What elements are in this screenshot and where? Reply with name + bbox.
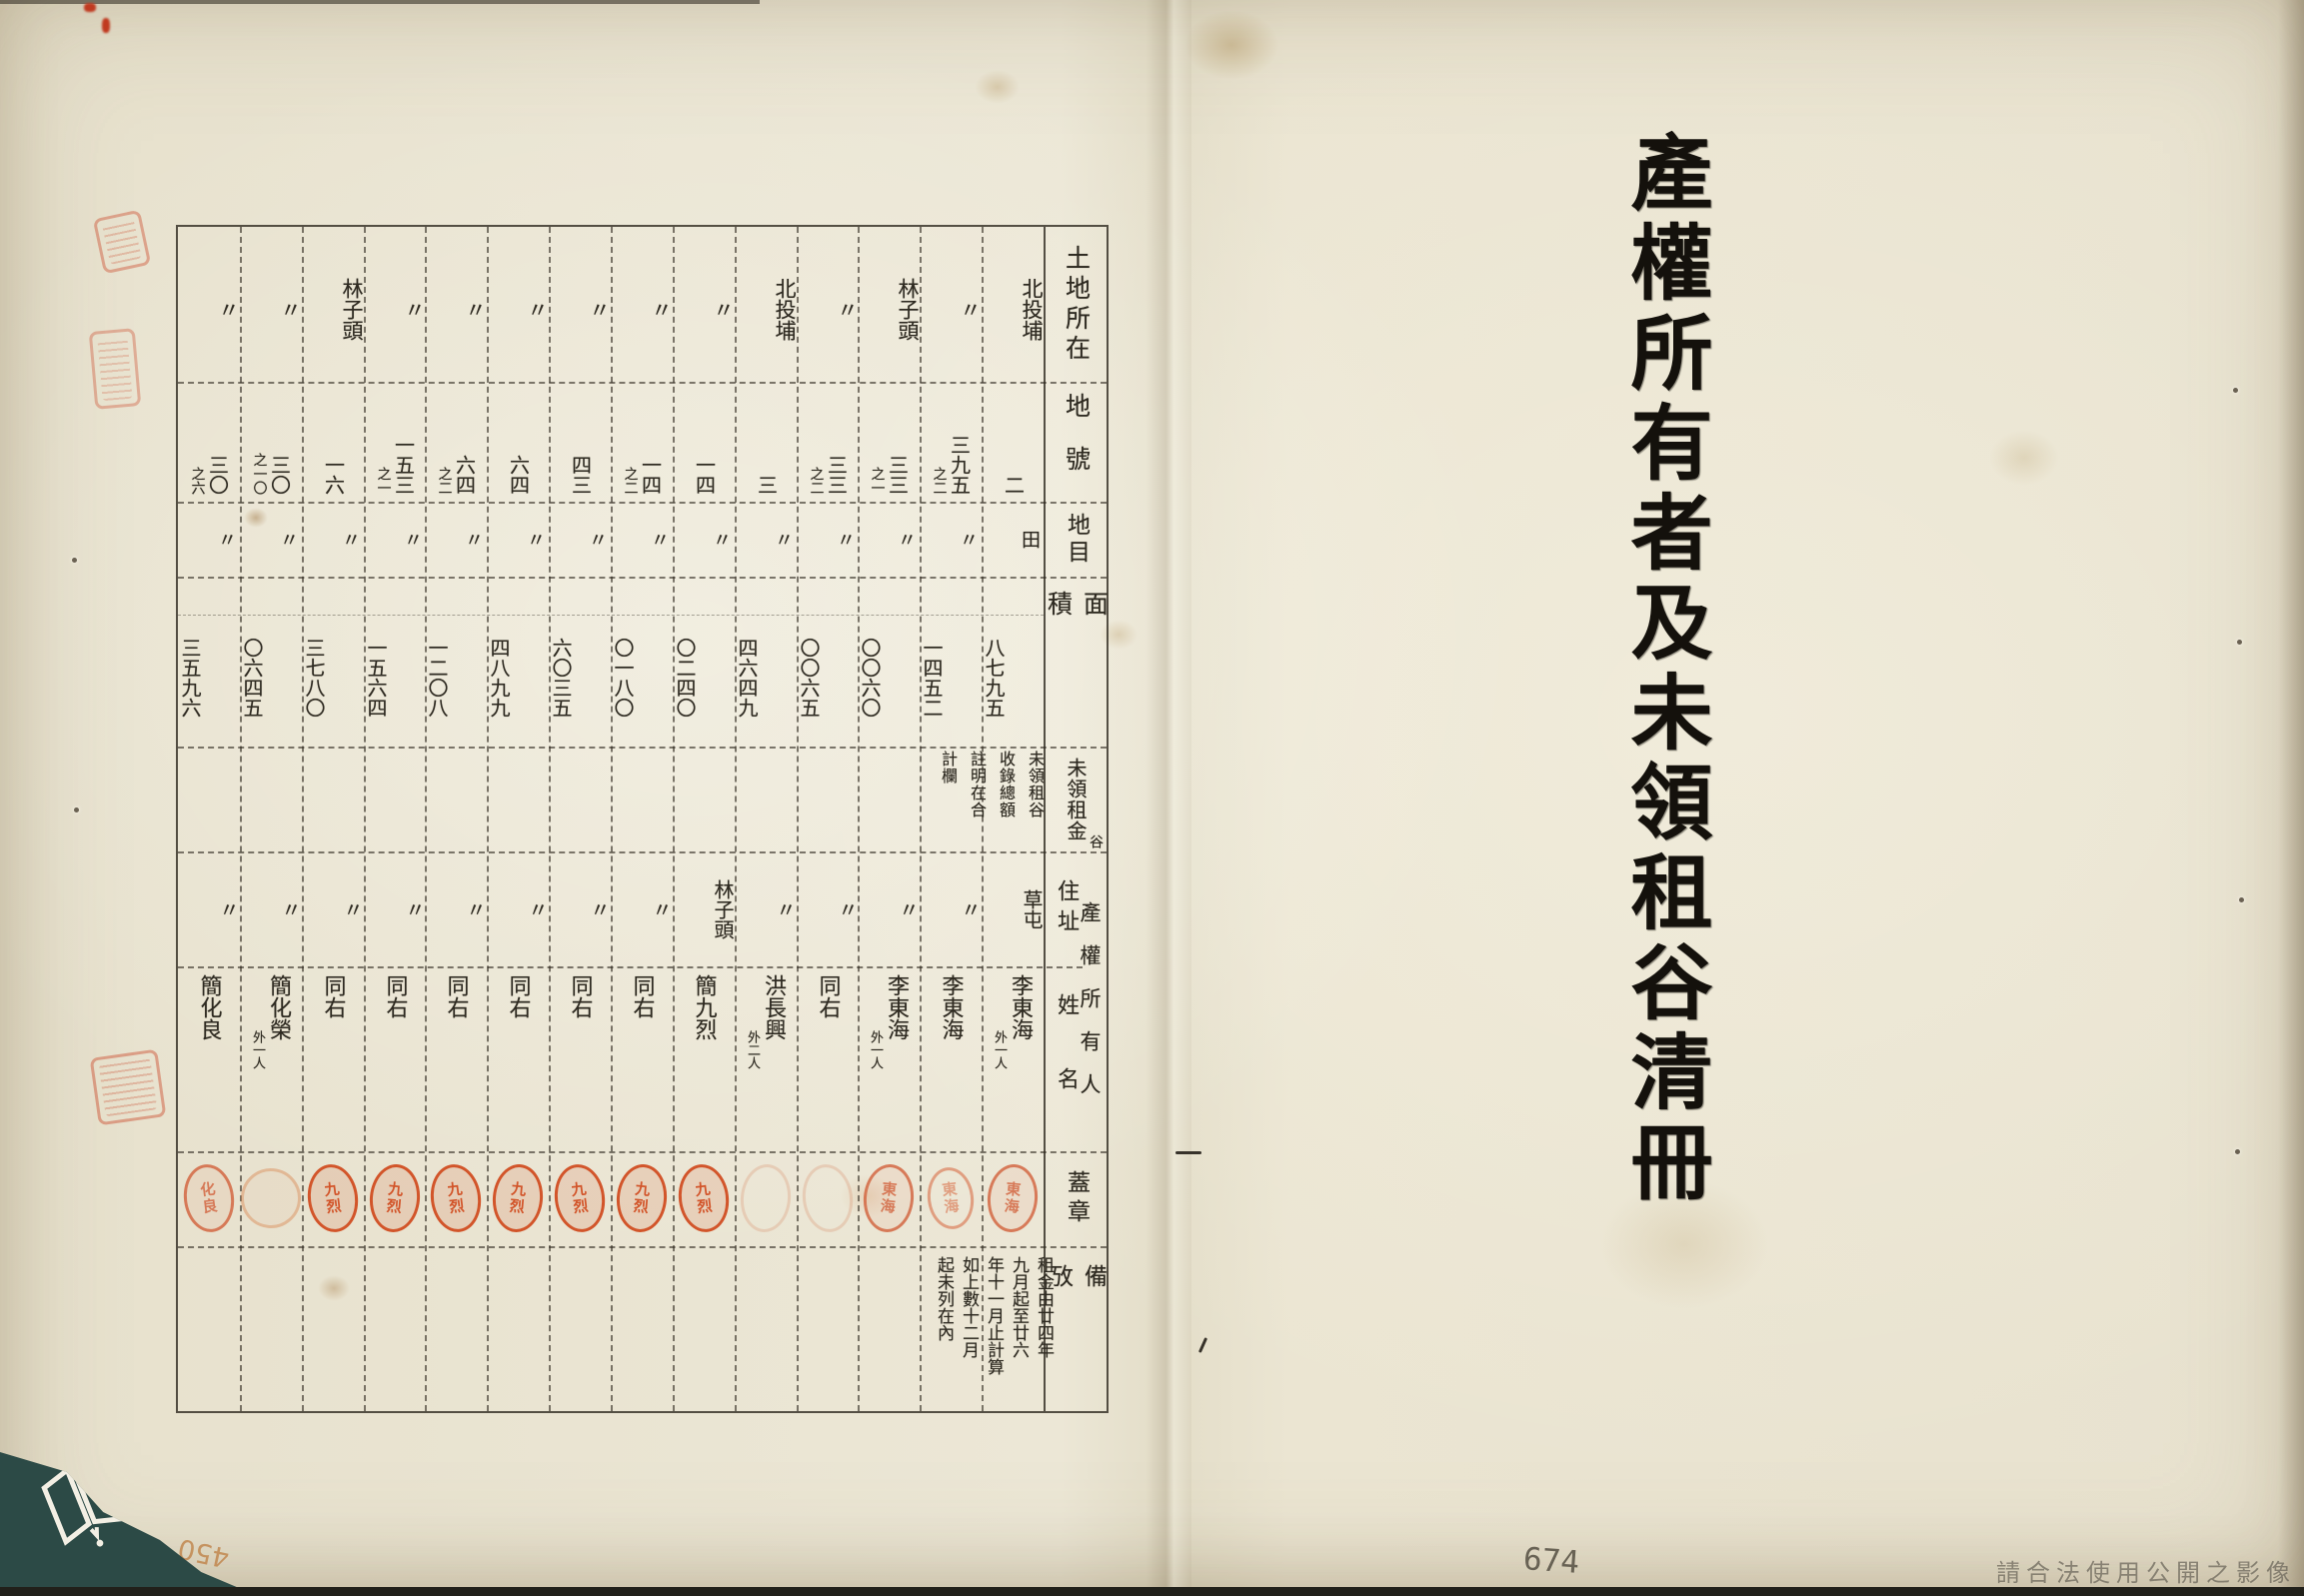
pinhole — [2237, 640, 2242, 645]
cell-seal: 九烈 — [549, 1152, 611, 1244]
header-lot-number: 地號 — [1046, 382, 1107, 502]
seal-stamp-icon: 九烈 — [304, 1161, 362, 1235]
owner-name-annotation: 外一人 — [868, 1030, 883, 1069]
cell-seal: 東海 — [920, 1152, 982, 1244]
table-column-7: 〃 一四 之二 〃 〇一八〇 〃 同右 九烈 — [611, 227, 673, 1411]
lot-main: 一四 — [639, 455, 662, 495]
pinhole — [2239, 897, 2244, 902]
cell-seal: 九烈 — [302, 1152, 364, 1244]
owner-name-annotation: 外二人 — [745, 1030, 760, 1069]
owner-name: 李東海 — [883, 974, 910, 1040]
seal-stamp-icon: 東海 — [924, 1164, 977, 1231]
lot-main: 六四 — [507, 455, 530, 495]
cell-lot-number: 三三 之一 — [858, 407, 920, 499]
table-column-11: 〃 一五三 之一 〃 一五六四 〃 同右 九烈 — [364, 227, 426, 1411]
pinhole — [2235, 1149, 2240, 1154]
cell-address: 〃 — [240, 856, 302, 962]
cover-title: 產權所有者及未領租谷清冊 — [1571, 120, 1751, 1219]
lot-sub: 之二 — [437, 467, 453, 495]
cell-owner-name: 李東海 外一人 — [982, 974, 1044, 1146]
cell-seal: 九烈 — [673, 1152, 735, 1244]
stray-pen-mark — [1175, 1151, 1201, 1154]
cell-area: 一四五二 — [920, 617, 982, 743]
cell-address: 〃 — [858, 856, 920, 962]
seal-stamp-icon: 九烈 — [675, 1161, 733, 1235]
cell-address: 〃 — [797, 856, 859, 962]
lot-sub: 之二 — [623, 467, 639, 495]
cell-seal: 九烈 — [425, 1152, 487, 1244]
table-column-4: 〃 三三 之二 〃 〇〇六五 〃 同右 — [797, 227, 859, 1411]
cell-land-category: 〃 — [425, 509, 487, 569]
cell-address: 〃 — [487, 856, 549, 962]
owner-name: 同右 — [382, 974, 409, 1018]
scan-edge-bottom — [0, 1587, 2304, 1596]
red-speck — [84, 3, 96, 12]
cell-location: 〃 — [611, 239, 673, 379]
cell-seal — [735, 1152, 797, 1244]
scan-edge-top — [0, 0, 760, 4]
cell-lot-number: 三三 之二 — [797, 407, 859, 499]
pinhole — [74, 807, 79, 812]
cell-lot-number: 一四 之二 — [611, 407, 673, 499]
cell-seal — [240, 1152, 302, 1244]
cell-lot-number: 一六 — [302, 407, 364, 499]
cell-area: 〇二四〇 — [673, 617, 735, 743]
owner-name-annotation: 外一人 — [992, 1030, 1007, 1069]
rent-note: 未領租谷收錄總額註明在合計欄 — [934, 751, 1050, 862]
lot-main: 三九五 — [948, 435, 971, 495]
cell-owner-name: 簡九烈 — [673, 974, 735, 1146]
lot-sub: 之二 — [809, 467, 825, 495]
seal-stamp-icon — [799, 1161, 857, 1235]
cell-address: 〃 — [735, 856, 797, 962]
seal-stamp-icon — [238, 1165, 303, 1230]
cell-area: 六〇三五 — [549, 617, 611, 743]
seal-stamp-icon: 化良 — [180, 1161, 238, 1235]
cell-location: 〃 — [364, 239, 426, 379]
cell-address: 〃 — [425, 856, 487, 962]
cell-land-category: 〃 — [240, 509, 302, 569]
land-register-table: 土地所在 地號 地目 面積 未領租金 谷 產權所有人 住址 姓名 蓋章 備攷 北… — [176, 225, 1109, 1413]
usage-watermark: 請合法使用公開之影像 — [1996, 1553, 2296, 1588]
cell-land-category: 田 — [982, 509, 1044, 569]
seal-stamp-icon: 九烈 — [551, 1161, 609, 1235]
table-header-column: 土地所在 地號 地目 面積 未領租金 谷 產權所有人 住址 姓名 蓋章 備攷 — [1044, 227, 1107, 1411]
cell-address: 〃 — [302, 856, 364, 962]
lot-sub: 之一 — [376, 467, 392, 495]
margin-seal-icon — [89, 328, 142, 410]
lot-sub: 之一〇 — [252, 453, 268, 495]
cell-lot-number: 一四 — [673, 407, 735, 499]
cell-lot-number: 一五三 之一 — [364, 407, 426, 499]
cell-owner-name: 同右 — [302, 974, 364, 1146]
lot-main: 三三 — [825, 455, 848, 495]
cell-lot-number: 四三 — [549, 407, 611, 499]
lot-main: 三〇 — [206, 455, 229, 495]
owner-name: 洪長興 — [760, 974, 787, 1040]
cell-location: 〃 — [549, 239, 611, 379]
lot-main: 二 — [1002, 475, 1025, 495]
header-seal: 蓋章 — [1046, 1151, 1107, 1246]
owner-name: 同右 — [443, 974, 470, 1018]
cell-owner-name: 簡化榮 外一人 — [240, 974, 302, 1146]
cell-land-category: 〃 — [858, 509, 920, 569]
page-number: 674 — [1522, 1541, 1580, 1581]
cell-area: 〇一八〇 — [611, 617, 673, 743]
header-unclaimed-rent-label: 未領租金 — [1062, 758, 1091, 841]
table-column-14: 〃 三〇 之六 〃 三五九六 〃 簡化良 化良 — [178, 227, 240, 1411]
seal-stamp-icon: 東海 — [861, 1162, 917, 1234]
cell-land-category: 〃 — [920, 509, 982, 569]
cell-area: 三七八〇 — [302, 617, 364, 743]
page-fold-crease — [1146, 0, 1191, 1596]
header-address: 住址 — [1046, 851, 1086, 966]
table-column-3: 林子頭 三三 之一 〃 〇〇六〇 〃 李東海 外一人 東海 — [858, 227, 920, 1411]
lot-sub: 之六 — [190, 467, 206, 495]
remarks-note: 租金由廿四年九月起至廿六年十一月止計算如上數十二月起未列在內 — [926, 1256, 1056, 1406]
cell-owner-name: 同右 — [487, 974, 549, 1146]
cell-owner-name: 同右 — [425, 974, 487, 1146]
owner-name-annotation: 外一人 — [250, 1030, 265, 1069]
owner-name: 同右 — [567, 974, 594, 1018]
owner-name: 簡化良 — [196, 974, 223, 1040]
table-column-5: 北投埔 三 〃 四六四九 〃 洪長興 外二人 — [735, 227, 797, 1411]
cell-seal: 九烈 — [611, 1152, 673, 1244]
cell-land-category: 〃 — [611, 509, 673, 569]
cell-seal: 九烈 — [487, 1152, 549, 1244]
seal-stamp-icon: 九烈 — [427, 1161, 485, 1235]
cell-area: 一二〇八 — [425, 617, 487, 743]
cell-land-category: 〃 — [735, 509, 797, 569]
lot-sub: 之二 — [932, 467, 948, 495]
cell-area: 〇〇六〇 — [858, 617, 920, 743]
cell-owner-name: 同右 — [611, 974, 673, 1146]
cell-area: 一五六四 — [364, 617, 426, 743]
cell-location: 〃 — [797, 239, 859, 379]
cell-address: 草屯 — [982, 856, 1044, 962]
cell-address: 〃 — [364, 856, 426, 962]
owner-name: 同右 — [320, 974, 347, 1018]
table-column-10: 〃 六四 之二 〃 一二〇八 〃 同右 九烈 — [425, 227, 487, 1411]
cell-land-category: 〃 — [673, 509, 735, 569]
cell-address: 〃 — [549, 856, 611, 962]
cell-lot-number: 六四 — [487, 407, 549, 499]
margin-seal-icon — [90, 1049, 167, 1126]
cell-land-category: 〃 — [178, 509, 240, 569]
lot-main: 一四 — [693, 455, 716, 495]
cell-location: 〃 — [673, 239, 735, 379]
cell-location: 〃 — [920, 239, 982, 379]
cell-lot-number: 三九五 之二 — [920, 407, 982, 499]
header-area: 面積 — [1046, 577, 1107, 747]
lot-main: 一六 — [322, 455, 345, 495]
table-column-8: 〃 四三 〃 六〇三五 〃 同右 九烈 — [549, 227, 611, 1411]
header-name: 姓名 — [1046, 966, 1086, 1151]
cell-lot-number: 六四 之二 — [425, 407, 487, 499]
cell-location: 〃 — [425, 239, 487, 379]
cell-location: 林子頭 — [302, 239, 364, 379]
cell-owner-name: 洪長興 外二人 — [735, 974, 797, 1146]
cell-location: 北投埔 — [735, 239, 797, 379]
table-column-12: 林子頭 一六 〃 三七八〇 〃 同右 九烈 — [302, 227, 364, 1411]
cell-address: 〃 — [611, 856, 673, 962]
cell-address: 〃 — [178, 856, 240, 962]
cell-owner-name: 同右 — [797, 974, 859, 1146]
cell-owner-name: 李東海 外一人 — [858, 974, 920, 1146]
cell-location: 林子頭 — [858, 239, 920, 379]
cell-owner-name: 同右 — [549, 974, 611, 1146]
cell-location: 北投埔 — [982, 239, 1044, 379]
cell-owner-name: 同右 — [364, 974, 426, 1146]
cell-location: 〃 — [240, 239, 302, 379]
owner-name: 同右 — [815, 974, 842, 1018]
cell-location: 〃 — [487, 239, 549, 379]
lot-main: 三三 — [886, 455, 909, 495]
cell-land-category: 〃 — [302, 509, 364, 569]
pinhole — [72, 558, 77, 563]
cell-owner-name: 簡化良 — [178, 974, 240, 1146]
seal-stamp-icon — [738, 1162, 794, 1234]
cell-area: 〇六四五 — [240, 617, 302, 743]
cell-lot-number: 三〇 之一〇 — [240, 407, 302, 499]
header-land-category: 地目 — [1046, 502, 1107, 577]
table-column-9: 〃 六四 〃 四八九九 〃 同右 九烈 — [487, 227, 549, 1411]
seal-stamp-icon: 九烈 — [367, 1162, 423, 1234]
lot-main: 四三 — [569, 455, 592, 495]
owner-name: 同右 — [629, 974, 656, 1018]
cell-lot-number: 三 — [735, 407, 797, 499]
cell-land-category: 〃 — [364, 509, 426, 569]
seal-stamp-icon: 九烈 — [614, 1162, 670, 1234]
cell-land-category: 〃 — [797, 509, 859, 569]
red-speck — [102, 18, 110, 33]
cell-lot-number: 三〇 之六 — [178, 407, 240, 499]
owner-name: 簡化榮 — [265, 974, 292, 1040]
lot-sub: 之一 — [870, 467, 886, 495]
lot-main: 三 — [755, 475, 778, 495]
owner-name: 李東海 — [1007, 974, 1034, 1040]
lot-main: 六四 — [453, 455, 476, 495]
lot-main: 三〇 — [268, 455, 291, 495]
cell-land-category: 〃 — [549, 509, 611, 569]
cell-seal: 九烈 — [364, 1152, 426, 1244]
cell-address: 〃 — [920, 856, 982, 962]
cell-area: 八七九五 — [982, 617, 1044, 743]
pinhole — [2233, 388, 2238, 393]
seal-stamp-icon: 九烈 — [490, 1162, 546, 1234]
owner-name: 簡九烈 — [691, 974, 718, 1040]
cell-address: 林子頭 — [673, 856, 735, 962]
cell-location: 〃 — [178, 239, 240, 379]
cell-seal: 化良 — [178, 1152, 240, 1244]
seal-stamp-icon: 東海 — [985, 1162, 1041, 1234]
owner-name: 李東海 — [938, 974, 965, 1040]
scan-edge-right — [2278, 0, 2304, 1596]
cell-area: 三五九六 — [178, 617, 240, 743]
table-column-6: 〃 一四 〃 〇二四〇 林子頭 簡九烈 九烈 — [673, 227, 735, 1411]
cell-land-category: 〃 — [487, 509, 549, 569]
header-location: 土地所在 — [1046, 227, 1107, 382]
cell-seal: 東海 — [858, 1152, 920, 1244]
cell-area: 四八九九 — [487, 617, 549, 743]
cell-area: 四六四九 — [735, 617, 797, 743]
header-rent-correction: 谷 — [1086, 834, 1106, 848]
table-column-13: 〃 三〇 之一〇 〃 〇六四五 〃 簡化榮 外一人 — [240, 227, 302, 1411]
cell-area: 〇〇六五 — [797, 617, 859, 743]
cell-seal: 東海 — [982, 1152, 1044, 1244]
cell-owner-name: 李東海 — [920, 974, 982, 1146]
lot-main: 一五三 — [392, 435, 415, 495]
owner-name: 同右 — [505, 974, 532, 1018]
cell-seal — [797, 1152, 859, 1244]
cell-lot-number: 二 — [982, 407, 1044, 499]
